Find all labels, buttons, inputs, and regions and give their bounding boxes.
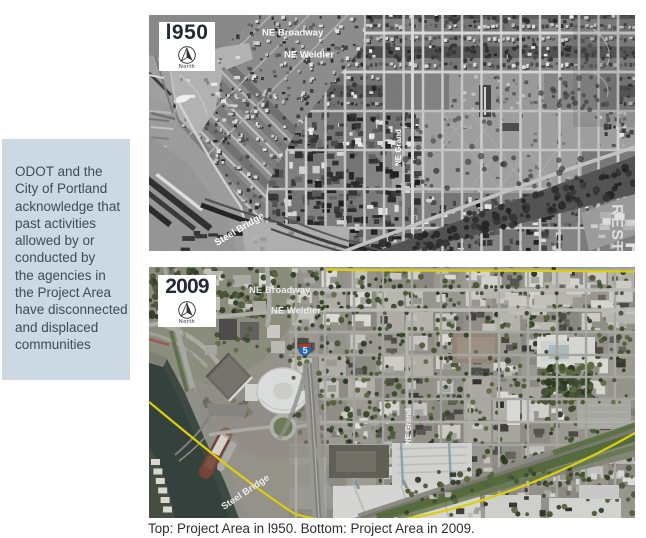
svg-text:North: North: [179, 64, 195, 70]
svg-text:North: North: [179, 319, 195, 325]
